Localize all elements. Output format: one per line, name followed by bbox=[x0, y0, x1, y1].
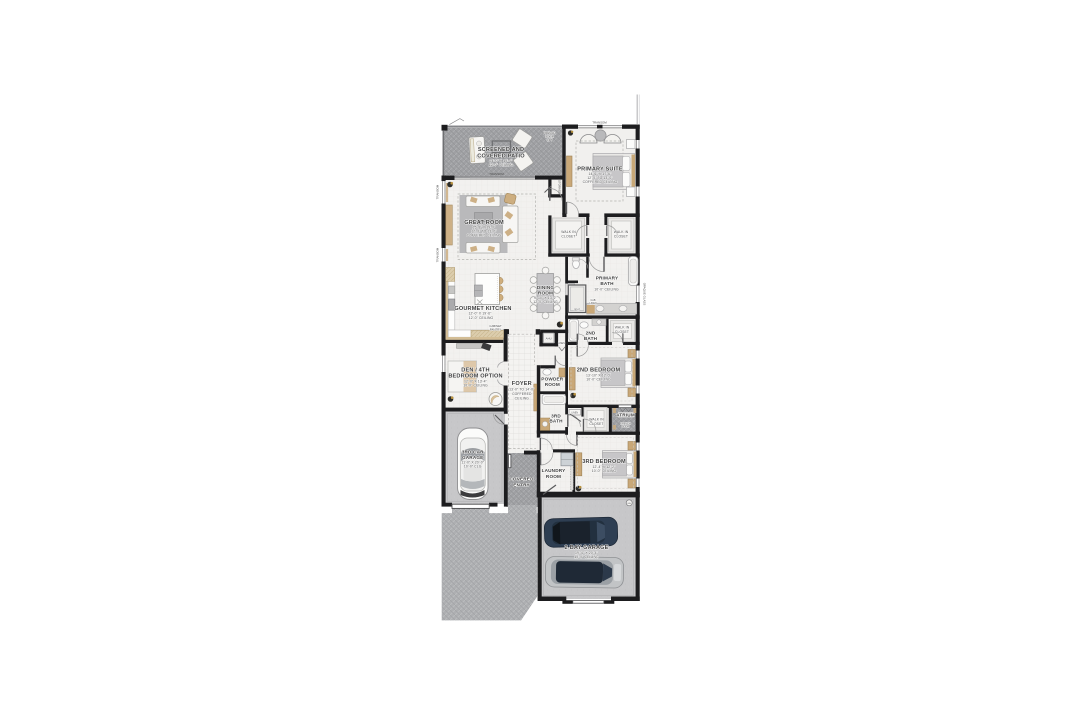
svg-text:2ND: 2ND bbox=[586, 331, 596, 336]
svg-text:TRANSOM: TRANSOM bbox=[489, 172, 504, 176]
svg-text:PRIMARY: PRIMARY bbox=[596, 276, 619, 281]
svg-text:LINEN: LINEN bbox=[589, 302, 596, 305]
svg-text:SEAT: SEAT bbox=[574, 309, 581, 312]
svg-text:OPAQUE GLASS: OPAQUE GLASS bbox=[643, 283, 647, 306]
svg-text:CLOSET: CLOSET bbox=[615, 330, 629, 334]
svg-text:BATH: BATH bbox=[549, 419, 563, 424]
svg-text:ENTRY: ENTRY bbox=[513, 482, 530, 487]
svg-text:10'-0" CEILING: 10'-0" CEILING bbox=[574, 555, 599, 559]
svg-text:COVERED: COVERED bbox=[509, 477, 534, 482]
svg-text:CLOSET: CLOSET bbox=[589, 422, 603, 426]
svg-text:ATRIUM: ATRIUM bbox=[616, 413, 635, 418]
svg-text:12'-0" CEILING: 12'-0" CEILING bbox=[533, 300, 558, 304]
svg-text:12'-0" CEILING: 12'-0" CEILING bbox=[489, 163, 514, 167]
svg-text:3RD CAR: 3RD CAR bbox=[462, 450, 484, 455]
svg-text:STORAGE: STORAGE bbox=[558, 180, 562, 194]
svg-text:ROOM: ROOM bbox=[538, 291, 553, 296]
svg-text:10'-0" CEILING: 10'-0" CEILING bbox=[463, 384, 488, 388]
svg-text:LINEN: LINEN bbox=[571, 413, 578, 415]
svg-text:WALK IN: WALK IN bbox=[614, 230, 629, 234]
svg-text:DINING: DINING bbox=[537, 285, 555, 290]
svg-text:10'-0" CEILING: 10'-0" CEILING bbox=[592, 469, 617, 473]
svg-text:BATH: BATH bbox=[600, 281, 614, 286]
svg-text:AHU: AHU bbox=[546, 337, 552, 341]
svg-text:10'-0" CEILING: 10'-0" CEILING bbox=[586, 378, 611, 382]
svg-text:COFFERED CEILING: COFFERED CEILING bbox=[583, 180, 618, 184]
svg-text:13'-0" TO 14'-0": 13'-0" TO 14'-0" bbox=[509, 388, 535, 392]
svg-text:CEILING: CEILING bbox=[515, 396, 530, 400]
svg-text:LAUNDRY: LAUNDRY bbox=[542, 468, 567, 473]
svg-text:BATH: BATH bbox=[584, 336, 598, 341]
svg-text:10'-0" CLG: 10'-0" CLG bbox=[464, 464, 482, 468]
svg-text:10'-0" CEILING: 10'-0" CEILING bbox=[594, 287, 619, 291]
svg-text:TRANSOM: TRANSOM bbox=[436, 184, 440, 199]
svg-text:DOOR: DOOR bbox=[622, 425, 629, 428]
svg-text:TRANSOM: TRANSOM bbox=[592, 121, 607, 125]
svg-text:OPT: OPT bbox=[547, 138, 553, 142]
svg-text:TRANSOM: TRANSOM bbox=[436, 247, 440, 262]
svg-text:FOYER: FOYER bbox=[512, 381, 532, 387]
svg-text:WALK IN: WALK IN bbox=[561, 230, 576, 234]
svg-text:ROOM: ROOM bbox=[546, 474, 561, 479]
svg-text:LINEN: LINEN bbox=[558, 343, 565, 345]
svg-text:CLOSET: CLOSET bbox=[561, 235, 575, 239]
svg-text:SCREENED AND: SCREENED AND bbox=[478, 147, 524, 153]
svg-text:12'-0" CEILING: 12'-0" CEILING bbox=[469, 316, 494, 320]
svg-text:CLOSET: CLOSET bbox=[614, 235, 628, 239]
svg-text:ROOM: ROOM bbox=[545, 382, 560, 387]
svg-text:WH: WH bbox=[627, 503, 631, 505]
svg-text:COFFERED: COFFERED bbox=[512, 392, 532, 396]
svg-text:COFFERED CEILING: COFFERED CEILING bbox=[467, 234, 502, 238]
svg-text:PANTRY: PANTRY bbox=[490, 327, 502, 331]
svg-text:POWDER: POWDER bbox=[541, 377, 563, 382]
svg-text:GARAGE: GARAGE bbox=[462, 455, 483, 460]
